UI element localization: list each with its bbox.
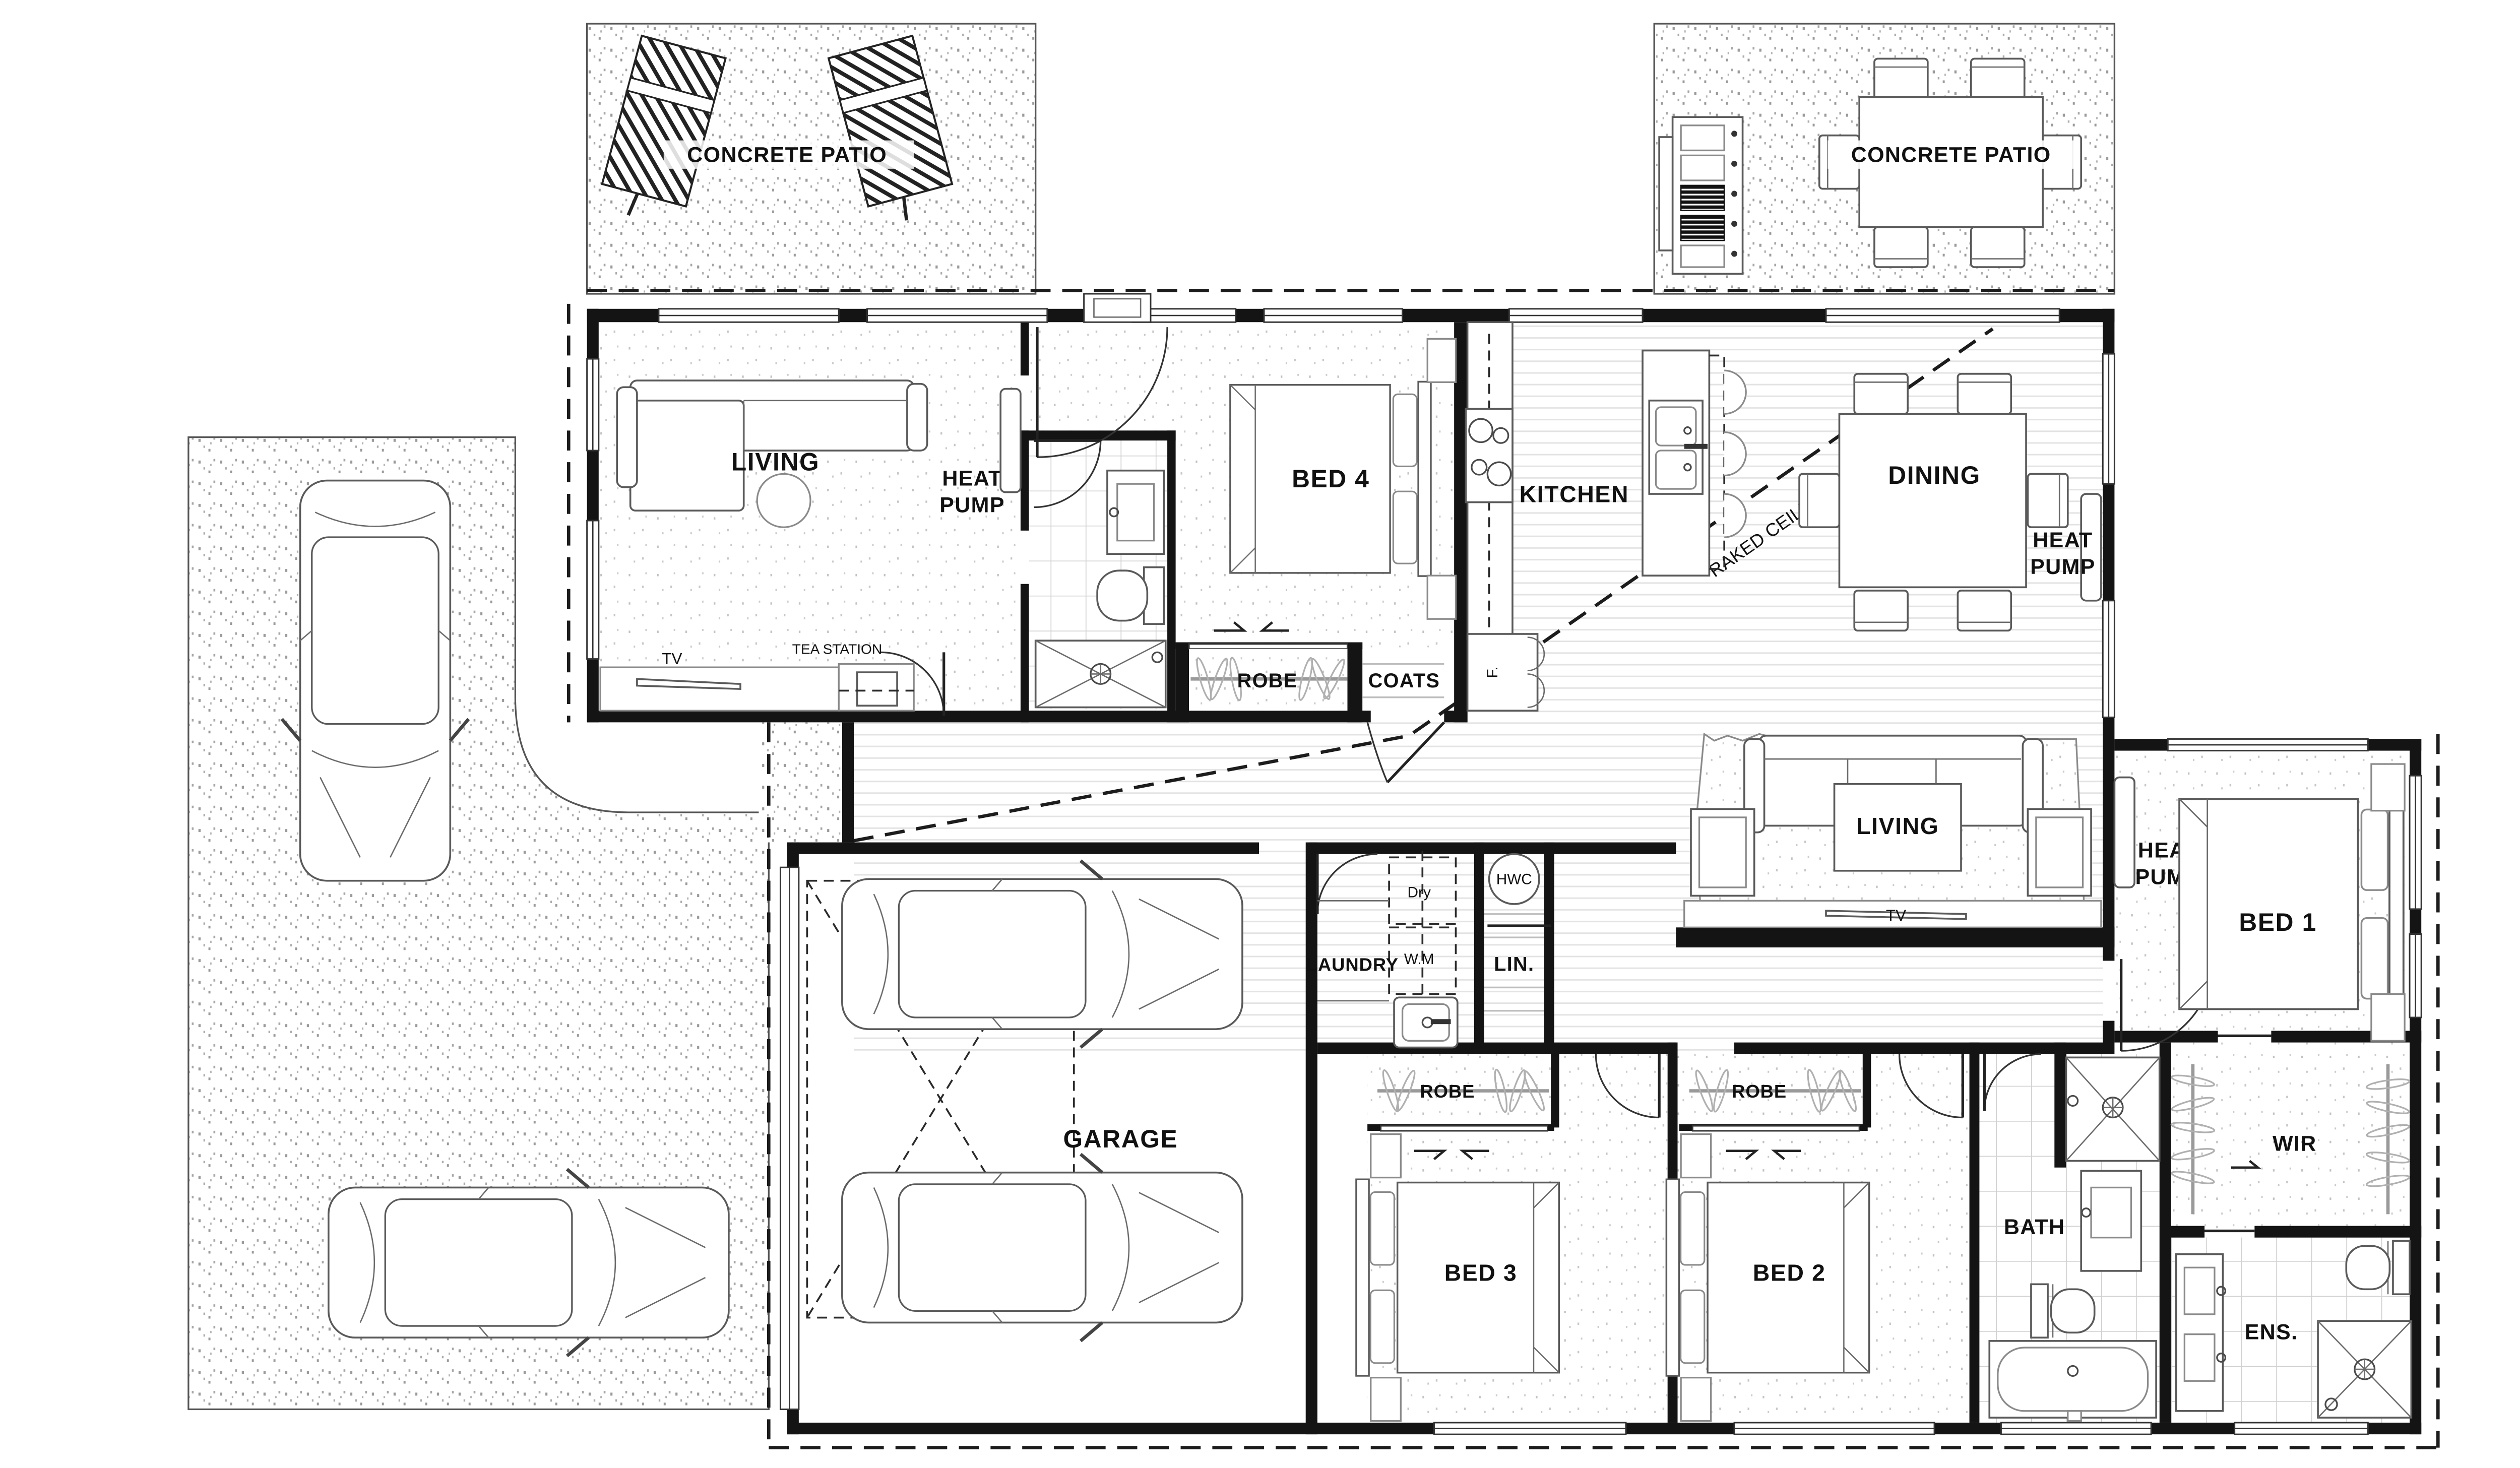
ottoman-icon bbox=[757, 474, 810, 527]
heat-pump-west-label: HEAT bbox=[942, 467, 1002, 491]
vanity-icon bbox=[2081, 1171, 2141, 1271]
entry-walkway bbox=[759, 722, 854, 842]
vanity-icon bbox=[2176, 1254, 2226, 1411]
bedside-table-icon bbox=[1427, 576, 1456, 619]
bath-label: BATH bbox=[2004, 1215, 2065, 1239]
armchair-icon bbox=[2028, 809, 2091, 896]
patio-northeast: CONCRETE PATIO bbox=[1654, 24, 2114, 294]
patio-nw-label: CONCRETE PATIO bbox=[687, 143, 887, 167]
car-icon bbox=[842, 861, 1242, 1048]
kitchen-label: KITCHEN bbox=[1520, 481, 1629, 507]
bedside-table-icon bbox=[2371, 994, 2405, 1041]
laundry-tub-icon bbox=[1394, 997, 1458, 1047]
living-family-label: LIVING bbox=[1856, 813, 1939, 839]
toilet-icon bbox=[1097, 567, 1164, 624]
armchair-icon bbox=[1691, 809, 1754, 896]
svg-text:PUMP: PUMP bbox=[2030, 555, 2096, 579]
robe-bed3-label: ROBE bbox=[1420, 1081, 1475, 1102]
car-icon bbox=[842, 1154, 1242, 1341]
heat-pump-unit-icon bbox=[1000, 389, 1021, 492]
car-icon bbox=[329, 1169, 729, 1356]
ens-label: ENS. bbox=[2245, 1320, 2298, 1345]
hwc-label: HWC bbox=[1496, 871, 1532, 887]
dryer-label: Dry bbox=[1408, 884, 1431, 901]
bathtub-icon bbox=[1989, 1341, 2156, 1421]
heat-pump-unit-icon bbox=[2114, 778, 2134, 887]
svg-text:PUMP: PUMP bbox=[939, 493, 1005, 517]
shower-icon bbox=[1036, 641, 1166, 707]
shower-icon bbox=[2318, 1321, 2411, 1418]
floor-plan-page: CONCRETE PATIO CONCRETE PATIO bbox=[0, 0, 2520, 1468]
bed4-label: BED 4 bbox=[1292, 465, 1369, 493]
garage-door bbox=[780, 867, 798, 1409]
coats-label: COATS bbox=[1368, 670, 1440, 692]
robe-bed4-label: ROBE bbox=[1237, 670, 1298, 692]
tv-cabinet-family: TV bbox=[1684, 901, 2101, 927]
garage-label: GARAGE bbox=[1063, 1125, 1178, 1153]
tea-station-label: TEA STATION bbox=[792, 642, 883, 657]
dining-label: DINING bbox=[1888, 461, 1981, 489]
tv-family-label: TV bbox=[1886, 907, 1906, 924]
fridge-icon: F. bbox=[1468, 634, 1544, 711]
bed1-label: BED 1 bbox=[2239, 908, 2316, 936]
robe-bed4: ROBE bbox=[1189, 649, 1347, 711]
patio-northwest: CONCRETE PATIO bbox=[587, 24, 1036, 294]
toilet-icon bbox=[2346, 1241, 2410, 1294]
bed2-label: BED 2 bbox=[1753, 1260, 1826, 1286]
cooktop-icon bbox=[1466, 409, 1513, 502]
bedside-table-icon bbox=[1371, 1378, 1401, 1421]
shower-icon bbox=[2066, 1057, 2159, 1161]
washing-machine-label: W.M bbox=[1404, 951, 1434, 968]
sink-icon bbox=[1649, 401, 1708, 494]
bedside-table-icon bbox=[2371, 764, 2405, 811]
bedside-table-icon bbox=[1681, 1378, 1711, 1421]
vanity-icon bbox=[1107, 471, 1164, 554]
outdoor-kitchen-icon bbox=[1659, 117, 1742, 274]
fridge-label: F. bbox=[1484, 667, 1501, 678]
room-garage: GARAGE bbox=[807, 861, 1242, 1341]
tv-west-label: TV bbox=[662, 650, 682, 668]
laundry-label: LAUNDRY bbox=[1306, 954, 1399, 975]
car-icon bbox=[282, 481, 469, 881]
heat-pump-dining-label: HEAT bbox=[2033, 528, 2093, 552]
wir-label: WIR bbox=[2273, 1132, 2317, 1156]
toilet-icon bbox=[2031, 1284, 2095, 1337]
bedside-table-icon bbox=[1371, 1134, 1401, 1178]
dining-table-icon bbox=[1839, 414, 2026, 587]
robe-bed2-label: ROBE bbox=[1732, 1081, 1787, 1102]
bed3-label: BED 3 bbox=[1444, 1260, 1518, 1286]
floor-plan: CONCRETE PATIO CONCRETE PATIO bbox=[0, 0, 2520, 1468]
patio-ne-label: CONCRETE PATIO bbox=[1851, 143, 2051, 167]
bedside-table-icon bbox=[1681, 1134, 1711, 1178]
living-west-label: LIVING bbox=[731, 448, 820, 476]
linen-label: LIN. bbox=[1494, 953, 1534, 975]
bedside-table-icon bbox=[1427, 339, 1456, 382]
